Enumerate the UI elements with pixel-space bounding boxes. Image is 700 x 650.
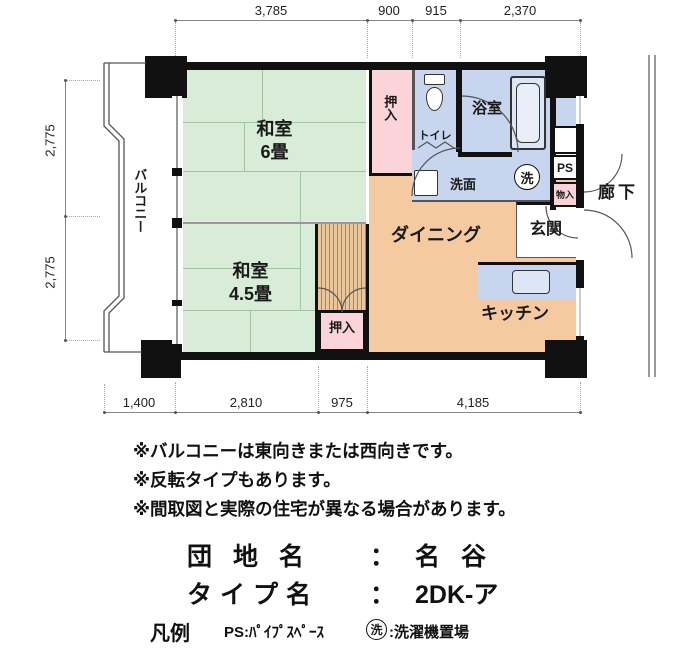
corridor-edge-line bbox=[648, 55, 650, 377]
dim-tick bbox=[366, 411, 369, 414]
note-line-2: ※反転タイプもあります。 bbox=[133, 466, 516, 495]
wall-washstand-bottom bbox=[412, 200, 550, 202]
dim-top-1: 3,785 bbox=[231, 3, 311, 18]
window-icon bbox=[576, 96, 584, 124]
dim-ext bbox=[412, 22, 413, 58]
storage-box: 物入 bbox=[552, 182, 578, 207]
dim-tick bbox=[317, 411, 320, 414]
legend-washing-machine-icon: 洗 bbox=[366, 619, 387, 640]
dim-ext bbox=[580, 22, 581, 58]
washbasin-icon bbox=[414, 170, 438, 196]
duct-box bbox=[553, 126, 578, 154]
type-name-label: タイプ名 bbox=[187, 575, 319, 611]
legend-ps-text: PS:ﾊﾟｲﾌﾟｽﾍﾟｰｽ bbox=[224, 621, 324, 642]
dim-ext bbox=[580, 382, 581, 410]
wall-corner-tl bbox=[145, 56, 187, 98]
window-icon bbox=[576, 288, 584, 336]
tatami-line bbox=[250, 310, 251, 352]
washitsu45-size: 4.5畳 bbox=[183, 283, 318, 306]
legend-heading: 凡例 bbox=[150, 617, 190, 646]
dim-top-4: 2,370 bbox=[480, 3, 560, 18]
dim-ext bbox=[67, 340, 100, 341]
washitsu45-name: 和室 bbox=[183, 260, 318, 283]
window-icon bbox=[172, 228, 182, 300]
entrance-label: 玄関 bbox=[518, 220, 574, 240]
window-icon bbox=[172, 306, 182, 344]
dim-top-3: 915 bbox=[416, 3, 456, 18]
dim-left-2: 2,775 bbox=[43, 245, 58, 301]
wall-bottom bbox=[168, 352, 586, 360]
washstand-label: 洗面 bbox=[440, 177, 486, 193]
washitsu6-name: 和室 bbox=[183, 118, 366, 141]
wall-bath-bottom bbox=[458, 152, 512, 157]
dining-label: ダイニング bbox=[366, 224, 506, 247]
wall-top bbox=[168, 62, 586, 70]
balcony-inner-line bbox=[109, 63, 124, 352]
kitchen-label: キッチン bbox=[460, 303, 570, 324]
dim-ext bbox=[367, 22, 368, 58]
dim-top-2: 900 bbox=[369, 3, 409, 18]
closet-upper-label: 押入 bbox=[381, 95, 397, 121]
washing-machine-label: 洗 bbox=[520, 168, 533, 187]
front-door-arc bbox=[584, 210, 632, 258]
dim-bottom-3: 975 bbox=[302, 395, 382, 410]
window-icon bbox=[172, 176, 182, 218]
legend-washing-symbol: 洗 bbox=[370, 621, 382, 638]
note-line-1: ※バルコニーは東向きまたは西向きです。 bbox=[133, 437, 516, 466]
wall-corner-bl bbox=[141, 340, 181, 378]
pipe-space-label: PS bbox=[557, 161, 573, 175]
room-step-board bbox=[318, 224, 366, 310]
corridor-label: 廊下 bbox=[588, 182, 648, 203]
dim-line-top bbox=[175, 20, 580, 21]
dim-tick bbox=[579, 411, 582, 414]
dim-tick bbox=[103, 411, 106, 414]
toilet-tank-icon bbox=[424, 74, 445, 85]
tatami-line bbox=[183, 171, 366, 172]
washitsu6-size: 6畳 bbox=[183, 141, 366, 164]
balcony-label: バルコニー bbox=[131, 168, 147, 233]
pipe-space-box: PS bbox=[552, 155, 578, 180]
balcony-outer-line bbox=[104, 63, 119, 352]
dim-tick bbox=[174, 411, 177, 414]
floor-plan-sheet: 3,785 900 915 2,370 2,775 2,775 1,400 2,… bbox=[0, 0, 700, 650]
note-line-3: ※間取図と実際の住宅が異なる場合があります。 bbox=[133, 495, 516, 524]
washitsu6-label: 和室 6畳 bbox=[183, 118, 366, 163]
type-name-separator: ： bbox=[370, 575, 395, 611]
dim-line-left bbox=[65, 80, 66, 340]
corridor-edge-line bbox=[654, 55, 656, 377]
dim-bottom-1: 1,400 bbox=[99, 395, 179, 410]
washitsu45-label: 和室 4.5畳 bbox=[183, 260, 318, 305]
estate-name-label: 団 地 名 bbox=[187, 537, 304, 573]
dim-bottom-4: 4,185 bbox=[433, 395, 513, 410]
toilet-label: トイレ bbox=[413, 130, 457, 144]
closet-lower-label: 押入 bbox=[318, 320, 366, 336]
dim-ext bbox=[67, 216, 100, 217]
estate-name-separator: ： bbox=[370, 537, 395, 573]
bath-label: 浴室 bbox=[462, 100, 512, 119]
dim-ext bbox=[175, 22, 176, 58]
estate-name-value: 名 谷 bbox=[415, 537, 486, 573]
legend-laundry-text: :洗濯機置場 bbox=[389, 621, 469, 642]
closet-upper bbox=[369, 70, 412, 176]
dim-ext bbox=[460, 22, 461, 58]
washing-machine-icon: 洗 bbox=[514, 164, 540, 190]
tatami-line bbox=[300, 171, 301, 222]
notes-block: ※バルコニーは東向きまたは西向きです。 ※反転タイプもあります。 ※間取図と実際… bbox=[133, 437, 516, 524]
tatami-line bbox=[262, 70, 263, 122]
dim-bottom-2: 2,810 bbox=[206, 395, 286, 410]
type-name-value: 2DK-ア bbox=[415, 575, 498, 611]
dim-left-1: 2,775 bbox=[43, 113, 58, 169]
wall-corner-br bbox=[545, 340, 587, 378]
entrance-door-opening bbox=[576, 208, 584, 260]
window-icon bbox=[172, 96, 182, 168]
sink-icon bbox=[512, 270, 550, 294]
bathtub-inner-icon bbox=[516, 83, 540, 143]
fusuma-divider bbox=[183, 222, 366, 224]
dim-ext bbox=[67, 80, 100, 81]
storage-label: 物入 bbox=[556, 188, 574, 201]
